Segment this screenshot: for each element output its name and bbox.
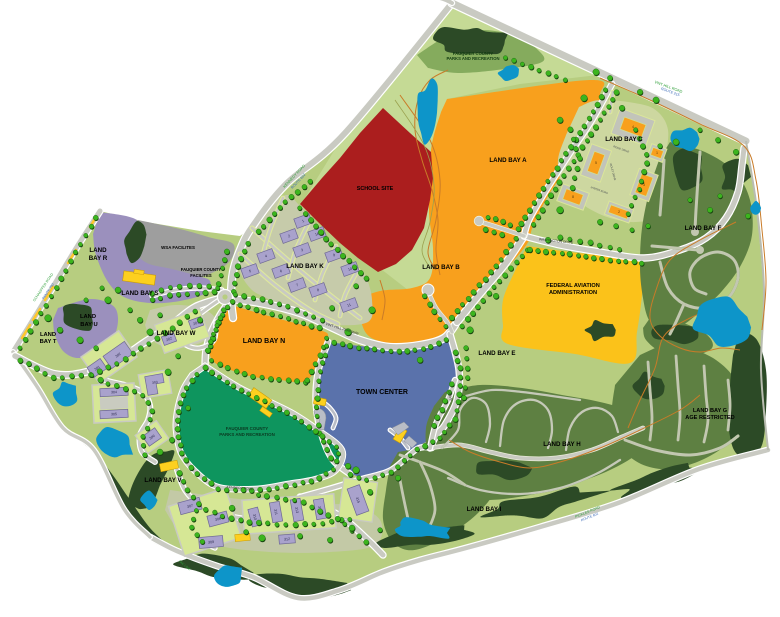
svg-text:LAND BAY W: LAND BAY W [157,330,196,337]
svg-text:BAY R: BAY R [89,255,108,262]
svg-text:LAND BAY G: LAND BAY G [693,408,727,414]
svg-text:ADMINISTRATION: ADMINISTRATION [549,290,597,296]
svg-text:FACILITES: FACILITES [190,273,212,278]
svg-text:SCHOOL SITE: SCHOOL SITE [357,186,394,192]
svg-text:LAND BAY V: LAND BAY V [144,477,182,484]
svg-text:BAY T: BAY T [40,339,57,345]
svg-text:LAND: LAND [80,314,96,320]
svg-text:LAND BAY B: LAND BAY B [422,264,460,271]
svg-text:LAND BAY K: LAND BAY K [286,263,324,270]
svg-text:TOWN CENTER: TOWN CENTER [356,389,408,396]
svg-text:WSA FACILITES: WSA FACILITES [161,245,195,250]
svg-text:AGE RESTRICTED: AGE RESTRICTED [685,415,734,421]
svg-text:FAUQUIER COUNTY: FAUQUIER COUNTY [226,426,269,431]
svg-text:8: 8 [572,195,574,199]
svg-text:1: 1 [656,151,658,155]
svg-text:5: 5 [595,161,597,165]
svg-text:FAUQUIER COUNTY: FAUQUIER COUNTY [181,267,222,272]
svg-text:312: 312 [284,537,290,542]
svg-text:BAY U: BAY U [80,322,97,328]
svg-text:2: 2 [618,210,620,214]
svg-text:309: 309 [208,540,214,545]
svg-text:PARKS AND RECREATION: PARKS AND RECREATION [219,432,275,437]
svg-text:LAND: LAND [40,332,56,338]
svg-text:PARKS AND RECREATION: PARKS AND RECREATION [447,56,500,61]
svg-text:LAND: LAND [89,247,107,254]
svg-text:304: 304 [111,390,117,394]
svg-text:LAND BAY F: LAND BAY F [685,225,722,232]
svg-text:LAND BAY S: LAND BAY S [121,290,158,297]
svg-text:LAND BAY E: LAND BAY E [478,350,515,357]
svg-text:LAND BAY A: LAND BAY A [489,157,527,164]
svg-text:FEDERAL AVIATION: FEDERAL AVIATION [546,283,600,289]
svg-text:LAND BAY H: LAND BAY H [543,441,581,448]
svg-text:LAND BAY N: LAND BAY N [243,338,285,345]
svg-text:305: 305 [111,412,117,416]
svg-text:LAND BAY C: LAND BAY C [605,136,643,143]
svg-text:LAND BAY I: LAND BAY I [467,506,502,513]
